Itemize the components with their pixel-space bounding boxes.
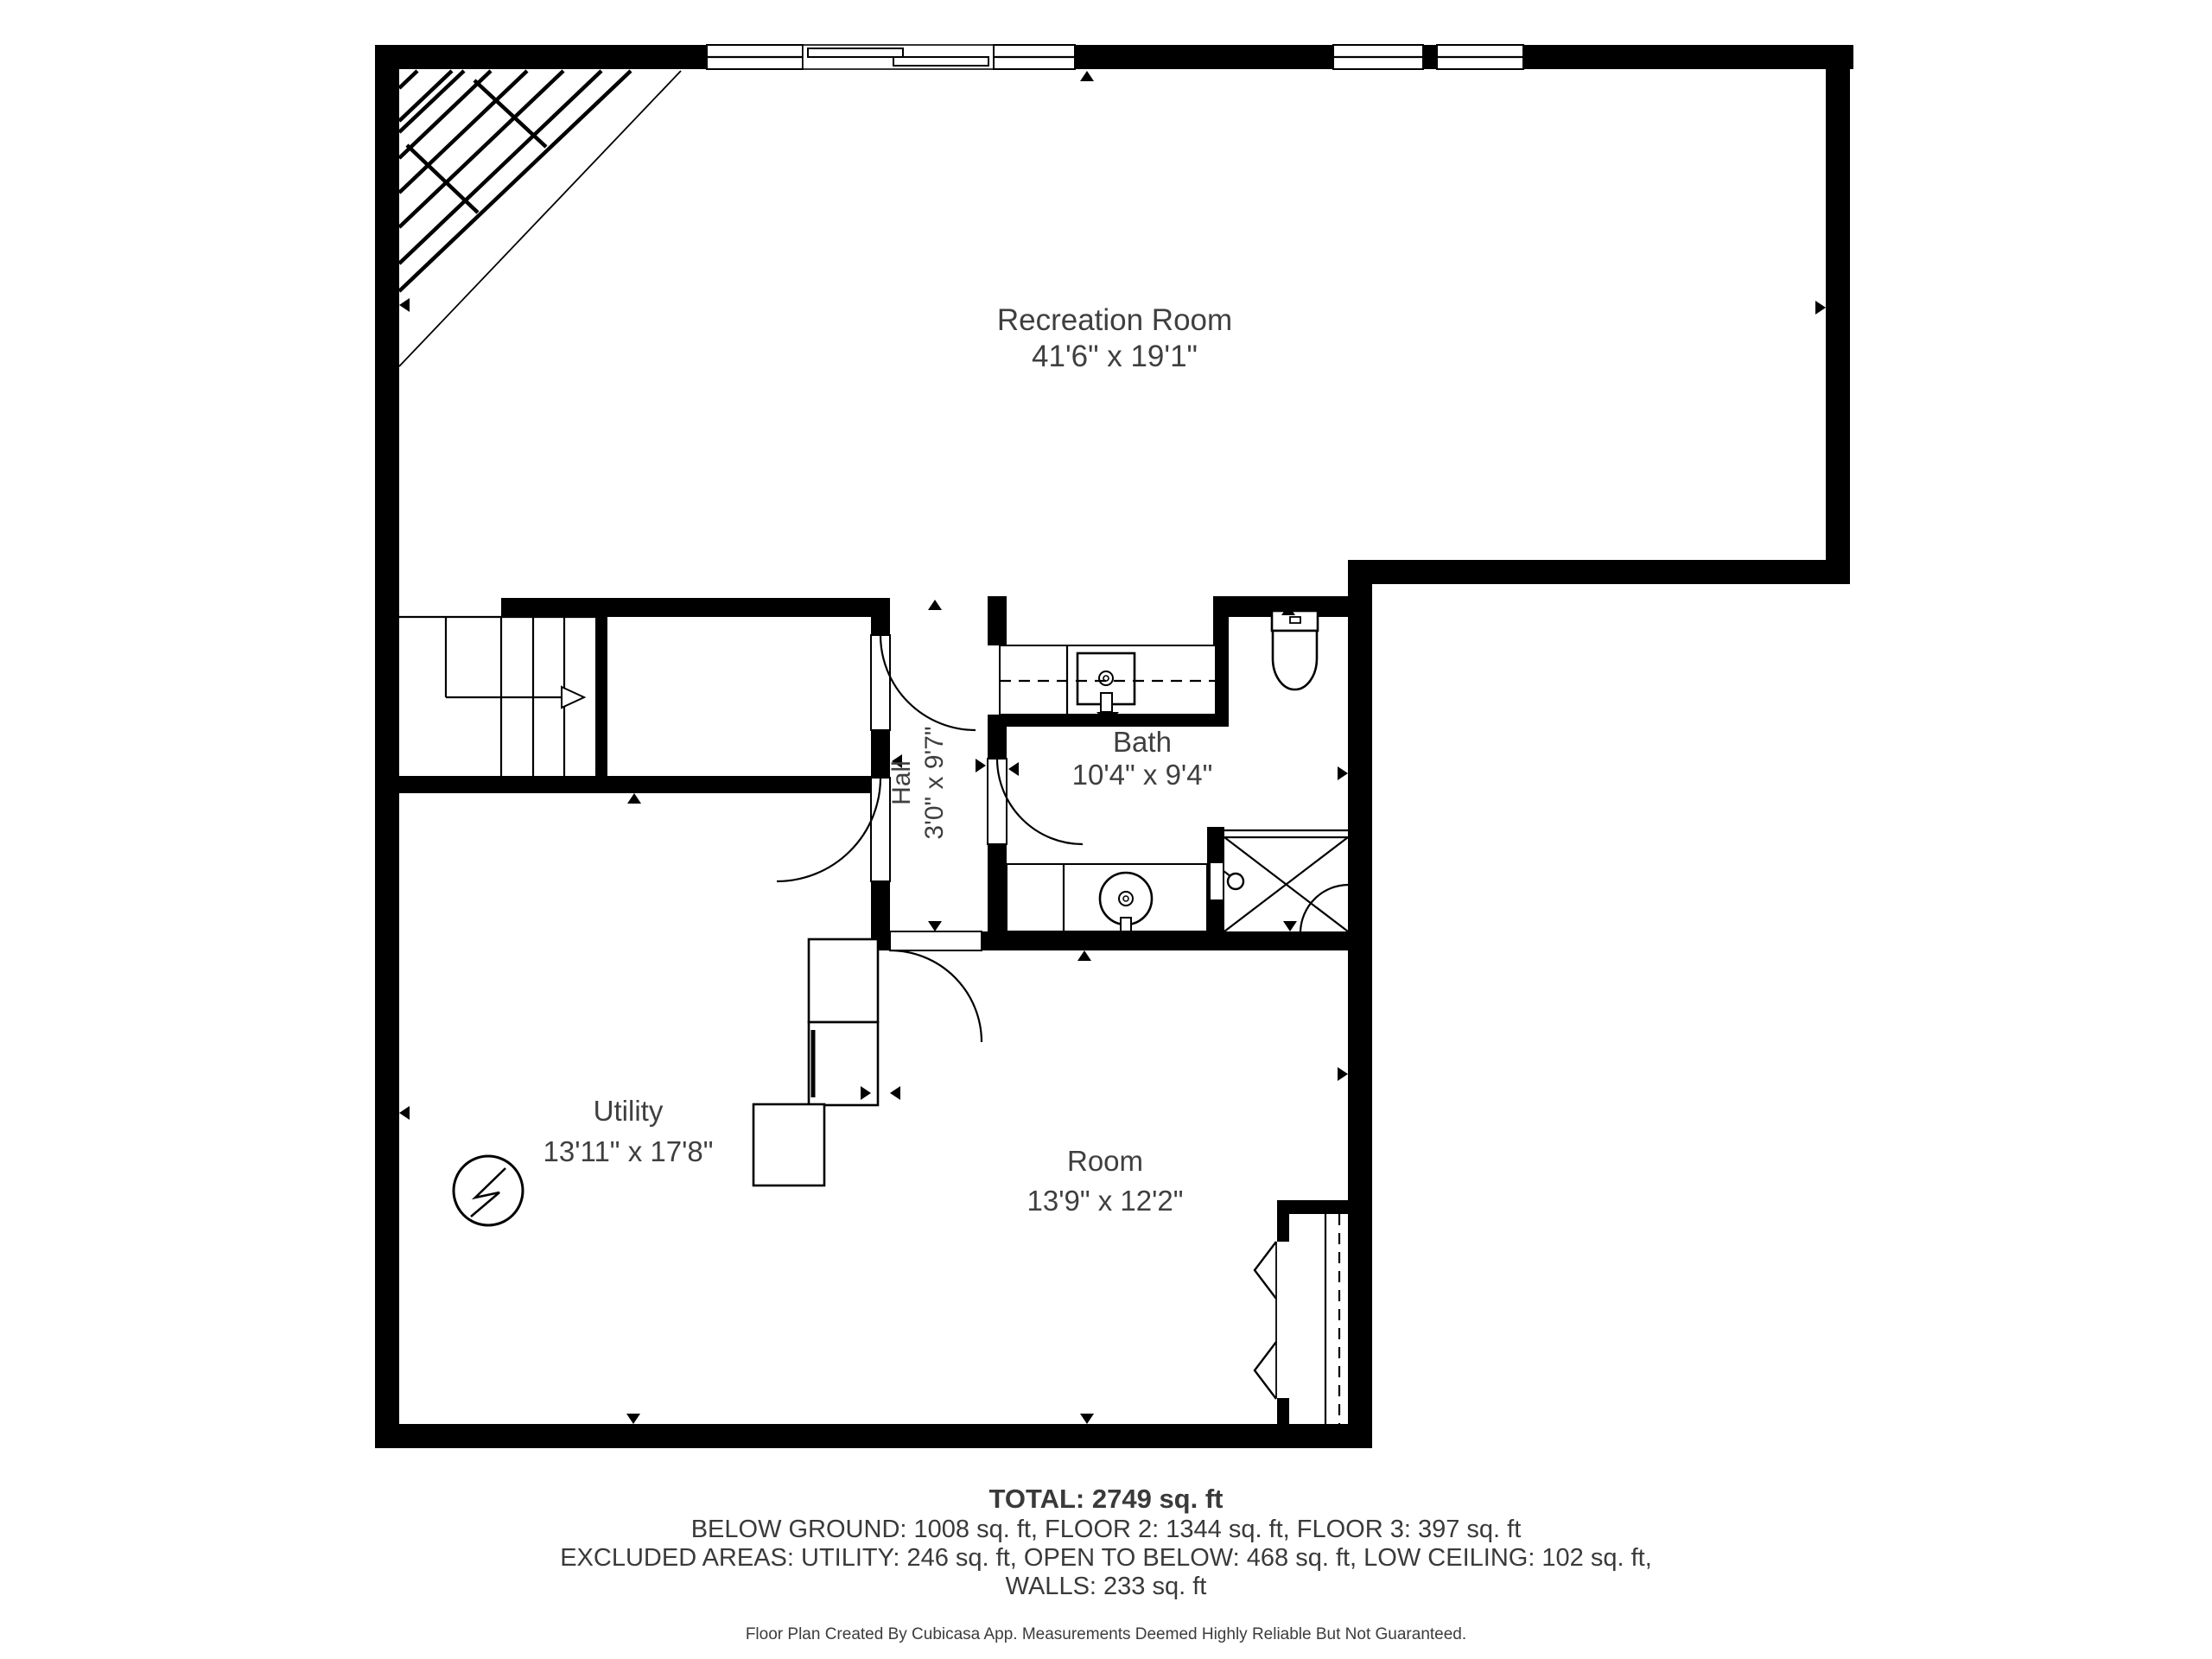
arrow-right-icon: [1815, 301, 1826, 315]
vanity-counter-icon: [1000, 645, 1216, 724]
arrow-left-icon: [1008, 762, 1019, 776]
arrow-down-icon: [928, 921, 942, 931]
electrical-panel-icon: [454, 1156, 523, 1225]
arrow-up-icon: [1077, 950, 1091, 961]
utility-dims: 13'11" x 17'8": [543, 1135, 714, 1167]
room-dims: 13'9" x 12'2": [1027, 1185, 1184, 1217]
appliance-icon: [753, 1104, 824, 1185]
toilet-icon: [1272, 611, 1318, 690]
hall-label: Hall: [887, 760, 916, 805]
closet: [1255, 1214, 1339, 1424]
room-door-icon: [890, 931, 982, 1042]
hall-dims: 3'0" x 9'7": [920, 726, 949, 839]
stairs-icon: [399, 617, 595, 776]
window-icon: [707, 45, 803, 69]
bifold-door-icon: [1255, 1242, 1276, 1299]
recreation-room-label: Recreation Room: [997, 303, 1232, 337]
room-label: Room: [1067, 1145, 1143, 1177]
arrow-right-icon: [1338, 1067, 1348, 1081]
total-area-text: TOTAL: 2749 sq. ft: [988, 1484, 1223, 1514]
utility-label: Utility: [594, 1095, 664, 1127]
arrow-left-icon: [399, 298, 410, 312]
arrow-down-icon: [626, 1414, 640, 1424]
arrow-up-icon: [627, 793, 641, 804]
arrow-left-icon: [890, 1086, 900, 1100]
bath-door-icon: [988, 759, 1083, 844]
floor-plan-page: Recreation Room 41'6" x 19'1" Bath 10'4"…: [0, 0, 2212, 1659]
walls-area-text: WALLS: 233 sq. ft: [1006, 1573, 1207, 1600]
disclaimer-text: Floor Plan Created By Cubicasa App. Meas…: [746, 1625, 1466, 1643]
sink-counter-icon: [1007, 864, 1207, 931]
arrow-right-icon: [1338, 766, 1348, 780]
bath-dims: 10'4" x 9'4": [1072, 759, 1213, 791]
stair-hatch-icon: [399, 71, 681, 366]
window-icon: [994, 45, 1075, 69]
arrow-left-icon: [399, 1106, 410, 1120]
recreation-room-dims: 41'6" x 19'1": [1032, 340, 1198, 373]
bath-label: Bath: [1113, 726, 1172, 758]
shower-icon: [1210, 830, 1348, 931]
arrow-down-icon: [1080, 1414, 1094, 1424]
arrow-up-icon: [1080, 71, 1094, 81]
appliance-icon: [809, 939, 878, 1022]
window-icon: [1437, 45, 1523, 69]
arrow-down-icon: [1283, 921, 1297, 931]
floor-plan-canvas: Recreation Room 41'6" x 19'1" Bath 10'4"…: [0, 0, 2212, 1659]
sliding-door-icon: [803, 45, 994, 69]
stair-direction-arrow-icon: [562, 687, 584, 708]
window-icon: [1333, 45, 1423, 69]
summary: TOTAL: 2749 sq. ft BELOW GROUND: 1008 sq…: [560, 1484, 1652, 1643]
floors-area-text: BELOW GROUND: 1008 sq. ft, FLOOR 2: 1344…: [691, 1516, 1522, 1543]
closet-door-icon: [871, 635, 976, 730]
excluded-area-text: EXCLUDED AREAS: UTILITY: 246 sq. ft, OPE…: [560, 1544, 1652, 1572]
arrow-right-icon: [976, 759, 986, 772]
bifold-door-icon: [1255, 1342, 1276, 1399]
arrow-up-icon: [928, 600, 942, 610]
utility-fixtures: [454, 939, 878, 1225]
